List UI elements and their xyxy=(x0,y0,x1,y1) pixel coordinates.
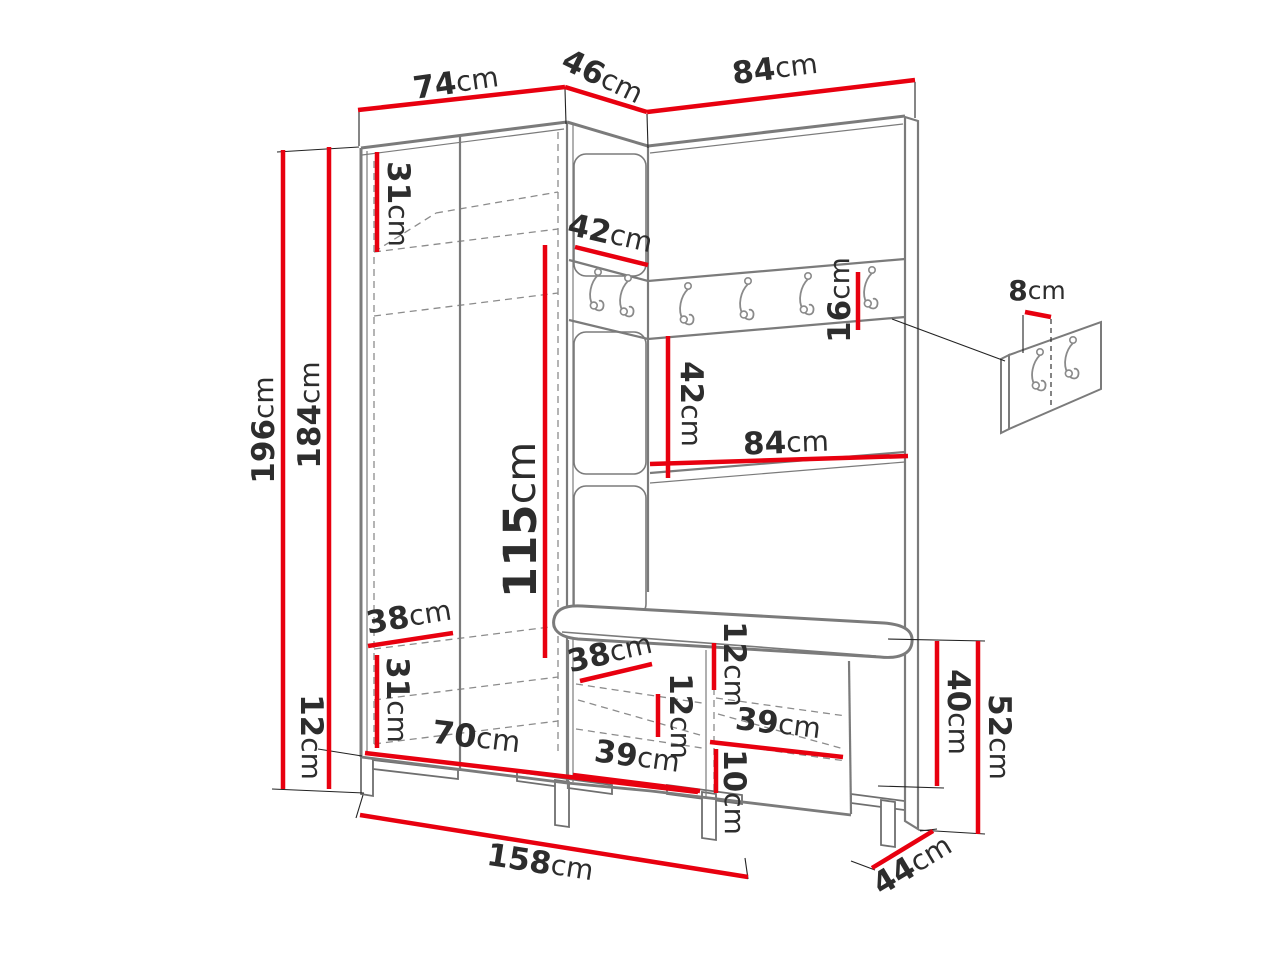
dimension-wall-hook-spacing: 8cm xyxy=(1008,274,1066,317)
dimension-label: 16cm xyxy=(822,257,858,343)
dimension-corner-shelf-width: 42cm xyxy=(564,206,656,265)
dimension-label: 184cm xyxy=(292,361,328,468)
dimension-top-width-left: 74cm xyxy=(358,59,565,110)
dimension-top-shelf-height: 31cm xyxy=(377,152,417,252)
dimension-line xyxy=(647,80,915,112)
dimension-hanging-space-height: 115cm xyxy=(494,245,547,658)
dimension-total-width: 158cm xyxy=(360,815,748,889)
dimension-label: 70cm xyxy=(430,713,523,762)
wall-hook-panel-detail xyxy=(1001,315,1101,433)
dimension-cushion-box-height: 12cm xyxy=(714,621,753,707)
dimension-label: 84cm xyxy=(730,45,820,91)
dimension-total-height: 196cm xyxy=(246,150,284,789)
dimension-top-width-corner: 46cm xyxy=(556,42,649,112)
dimension-label: 52cm xyxy=(982,694,1018,780)
dimension-bottom-shelf-height: 31cm xyxy=(377,655,416,748)
dimension-body-height: 184cm xyxy=(292,147,330,748)
dimension-bench-depth: 44cm xyxy=(866,827,958,902)
dimension-label: 84cm xyxy=(742,423,829,462)
dimension-back-panel-height: 42cm xyxy=(668,336,710,478)
dimension-label: 115cm xyxy=(494,442,547,598)
dimension-hook-rail-height: 16cm xyxy=(822,257,859,343)
dimension-label: 158cm xyxy=(484,836,596,888)
dimension-label: 31cm xyxy=(380,657,416,743)
dimension-label: 8cm xyxy=(1008,274,1066,307)
dimension-label: 42cm xyxy=(674,361,710,447)
dimension-line xyxy=(1025,312,1051,317)
dimension-label: 42cm xyxy=(564,206,656,260)
dimension-label: 74cm xyxy=(411,59,501,107)
dimension-bench-total-height: 52cm xyxy=(978,641,1018,834)
diagram-canvas: 74cm46cm84cm196cm184cm12cm31cm42cm16cm8c… xyxy=(0,0,1273,955)
dimension-label: 46cm xyxy=(556,42,649,112)
dimension-label: 196cm xyxy=(246,376,282,483)
dimension-bench-lower-height: 10cm xyxy=(716,749,753,835)
dimension-label: 40cm xyxy=(941,669,977,755)
dimension-label: 31cm xyxy=(381,161,417,247)
dimension-leg-height: 12cm xyxy=(294,694,330,789)
dimension-bench-inner-height: 40cm xyxy=(937,641,977,786)
dimension-label: 44cm xyxy=(866,827,958,902)
right-side-panel xyxy=(905,117,918,829)
dimension-label: 39cm xyxy=(733,700,823,746)
dimension-label: 12cm xyxy=(294,694,330,780)
dimension-label: 10cm xyxy=(717,749,753,835)
dimension-top-width-right: 84cm xyxy=(647,45,915,112)
dimension-label: 12cm xyxy=(717,621,753,707)
dimension-wardrobe-shelf-depth: 38cm xyxy=(364,592,454,646)
dimension-diagram: 74cm46cm84cm196cm184cm12cm31cm42cm16cm8c… xyxy=(0,0,1273,955)
